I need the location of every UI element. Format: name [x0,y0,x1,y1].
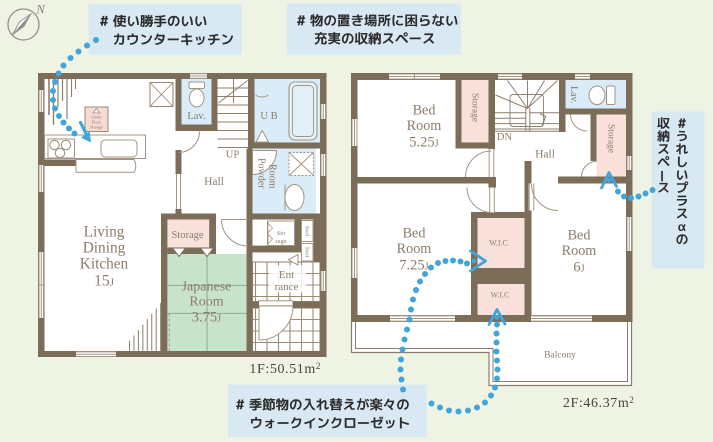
svg-text:Japanese: Japanese [182,280,232,295]
svg-text:Shelf: Shelf [304,247,309,258]
svg-text:Living: Living [84,224,125,241]
svg-text:Storage: Storage [90,125,103,130]
svg-text:Room: Room [189,295,223,310]
svg-text:Sto: Sto [277,230,286,237]
svg-text:Storage: Storage [171,230,203,241]
svg-text:UP: UP [226,150,240,161]
svg-text:Room: Room [562,243,597,259]
svg-text:DN: DN [497,132,513,143]
svg-text:Balcony: Balcony [544,351,576,361]
svg-text:N: N [35,3,45,17]
svg-text:Bed: Bed [403,226,426,242]
svg-text:Hall: Hall [204,176,224,188]
svg-text:Room: Room [267,164,278,189]
svg-text:rance: rance [275,281,299,293]
svg-text:3.75J: 3.75J [192,310,221,326]
svg-text:Kitchen: Kitchen [80,256,129,273]
svg-text:W.I.C: W.I.C [489,239,508,248]
svg-text:Ent: Ent [279,269,294,281]
svg-text:Room: Room [407,118,442,134]
svg-text:Bed: Bed [413,103,436,119]
svg-text:Storage: Storage [470,93,480,122]
svg-text:2F:46.37m2: 2F:46.37m2 [563,395,635,411]
svg-text:Shelf: Shelf [304,226,309,237]
svg-text:Bed: Bed [568,228,591,244]
svg-text:1F:50.51m2: 1F:50.51m2 [249,361,321,377]
svg-text:rage: rage [275,238,286,245]
svg-text:Powder: Powder [256,158,267,189]
svg-text:Storage: Storage [606,124,616,153]
svg-text:Dining: Dining [83,240,126,257]
svg-text:W.I.C: W.I.C [491,291,510,300]
svg-text:Hall: Hall [535,149,555,161]
svg-text:U B: U B [260,111,277,122]
svg-text:Room: Room [397,241,432,257]
svg-text:Lav.: Lav. [568,86,579,103]
svg-text:Lav.: Lav. [187,111,205,122]
svg-text:5.25J: 5.25J [409,135,438,151]
